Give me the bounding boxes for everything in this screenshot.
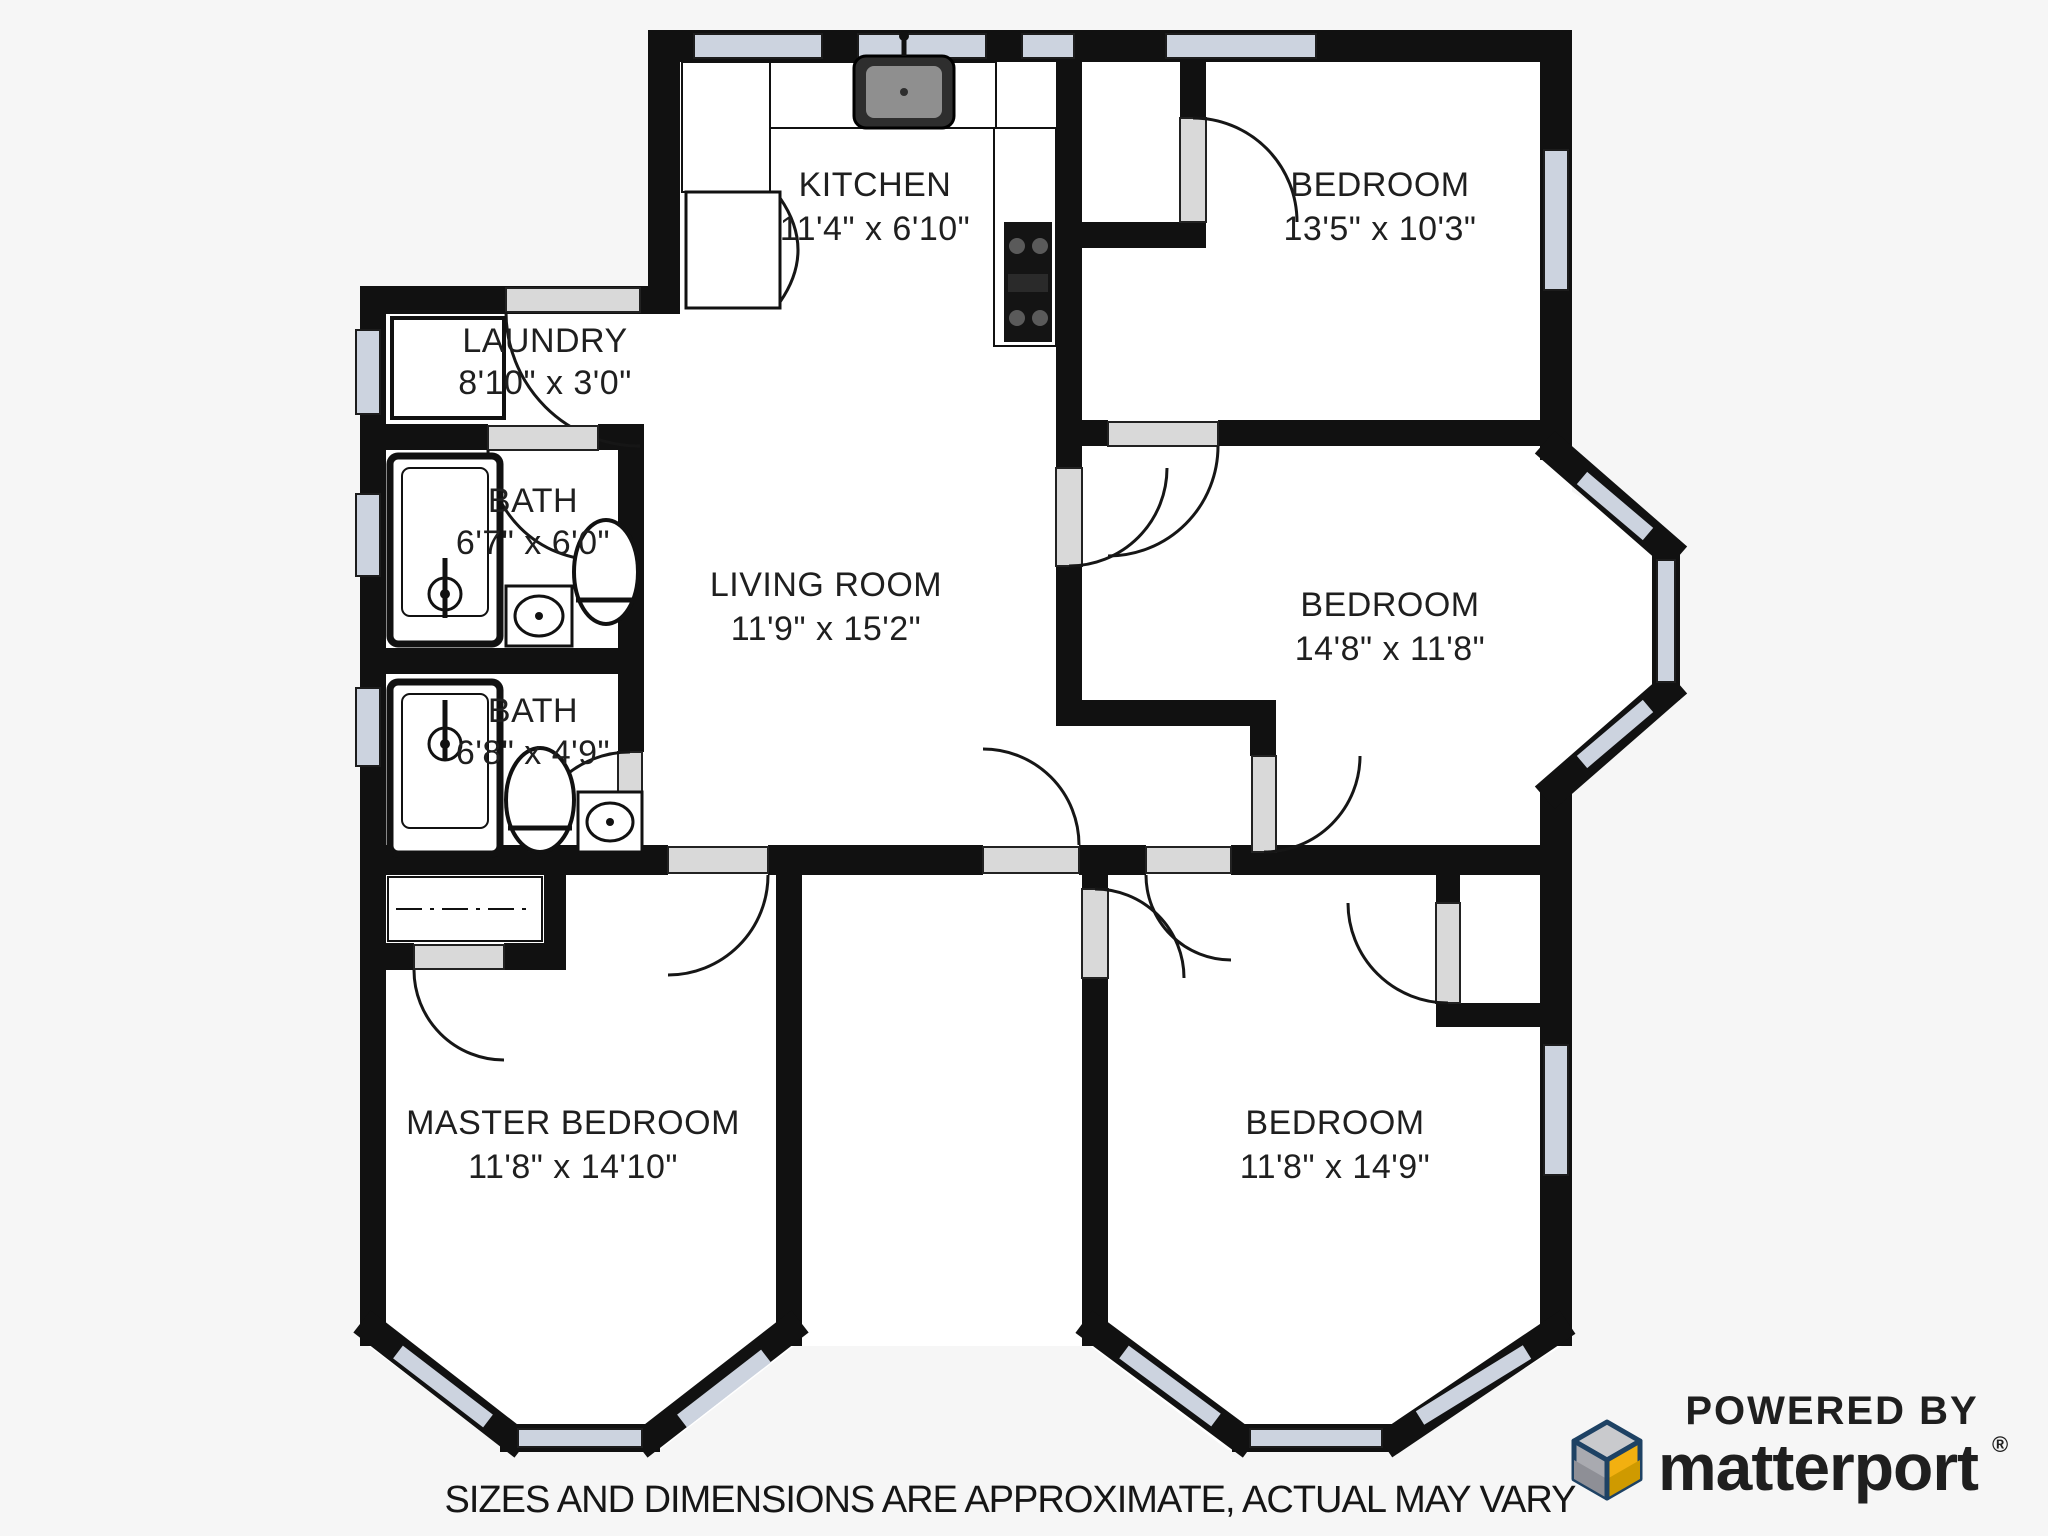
sink-icon (506, 586, 572, 646)
room-dims-bedroom-bottom: 11'8" x 14'9" (1240, 1148, 1430, 1186)
window (1250, 1429, 1382, 1447)
floor-hallway (802, 875, 1082, 1346)
window (1022, 34, 1074, 58)
room-label-bath-upper: BATH (488, 482, 578, 520)
matterport-cube-icon (1574, 1422, 1640, 1498)
room-label-bedroom-bottom: BEDROOM (1245, 1104, 1424, 1142)
window (694, 34, 822, 58)
floor-plan: KITCHEN 11'4" x 6'10" BEDROOM 13'5" x 10… (0, 0, 2048, 1536)
room-dims-kitchen: 11'4" x 6'10" (780, 210, 970, 248)
sink-icon (578, 792, 642, 852)
room-label-master-bedroom: MASTER BEDROOM (406, 1104, 740, 1142)
room-dims-bedroom-middle: 14'8" x 11'8" (1295, 630, 1485, 668)
room-label-laundry: LAUNDRY (462, 322, 627, 360)
room-label-bath-lower: BATH (488, 692, 578, 730)
room-label-bedroom-middle: BEDROOM (1300, 586, 1479, 624)
window (1657, 560, 1675, 682)
floor-plan-page: KITCHEN 11'4" x 6'10" BEDROOM 13'5" x 10… (0, 0, 2048, 1536)
room-dims-laundry: 8'10" x 3'0" (458, 364, 632, 402)
window (858, 34, 986, 58)
room-dims-bath-upper: 6'7" x 6'0" (456, 524, 610, 562)
room-label-kitchen: KITCHEN (799, 166, 952, 204)
window (1166, 34, 1316, 58)
kitchen-counter (682, 62, 770, 192)
disclaimer-text: SIZES AND DIMENSIONS ARE APPROXIMATE, AC… (445, 1479, 1577, 1521)
matterport-logo: POWERED BY matterport ® (1574, 1389, 2008, 1504)
window (518, 1429, 642, 1447)
room-dims-bath-lower: 6'8" x 4'9" (456, 734, 610, 772)
room-dims-master-bedroom: 11'8" x 14'10" (468, 1148, 678, 1186)
matterport-wordmark: matterport (1658, 1430, 1979, 1504)
powered-by-text: POWERED BY (1685, 1389, 1978, 1433)
room-label-living-room: LIVING ROOM (710, 566, 942, 604)
window (356, 330, 380, 414)
room-label-bedroom-top: BEDROOM (1290, 166, 1469, 204)
window (1544, 150, 1568, 290)
window (1544, 1045, 1568, 1175)
stove-icon (1004, 222, 1052, 342)
floor-upper (648, 30, 1572, 875)
window (356, 494, 380, 576)
room-dims-living-room: 11'9" x 15'2" (731, 610, 921, 648)
window (356, 688, 380, 766)
registered-mark: ® (1992, 1432, 2008, 1457)
wardrobe-icon (388, 877, 542, 941)
room-dims-bedroom-top: 13'5" x 10'3" (1284, 210, 1477, 248)
